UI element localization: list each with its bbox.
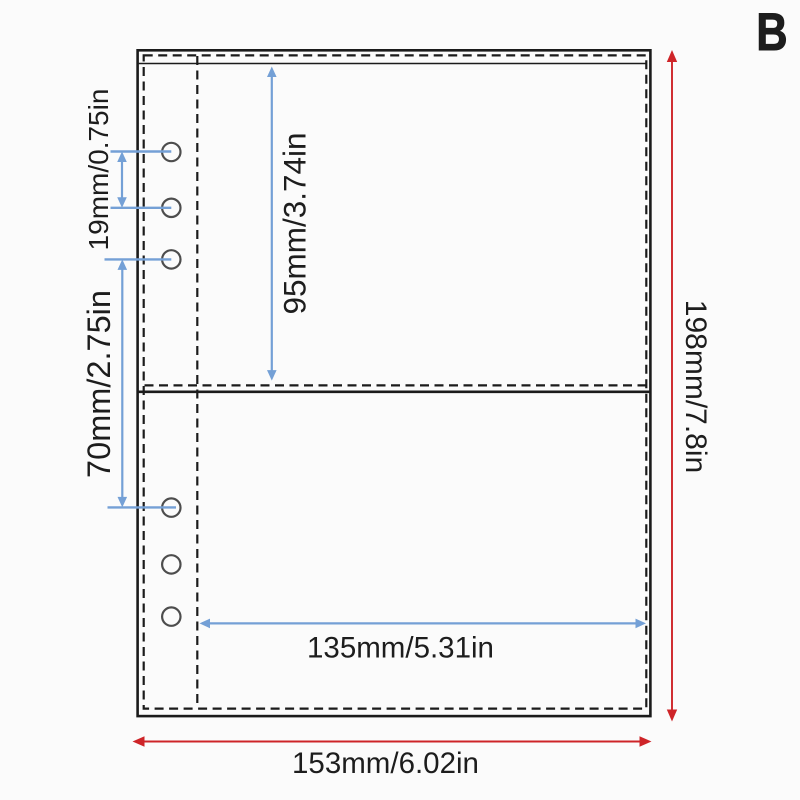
svg-text:135mm/5.31in: 135mm/5.31in: [307, 632, 494, 665]
svg-text:198mm/7.8in: 198mm/7.8in: [679, 300, 712, 473]
svg-text:19mm/0.75in: 19mm/0.75in: [83, 89, 114, 251]
svg-text:70mm/2.75in: 70mm/2.75in: [81, 290, 117, 478]
svg-text:B: B: [756, 3, 787, 62]
svg-text:153mm/6.02in: 153mm/6.02in: [292, 747, 479, 780]
svg-text:95mm/3.74in: 95mm/3.74in: [277, 132, 313, 314]
